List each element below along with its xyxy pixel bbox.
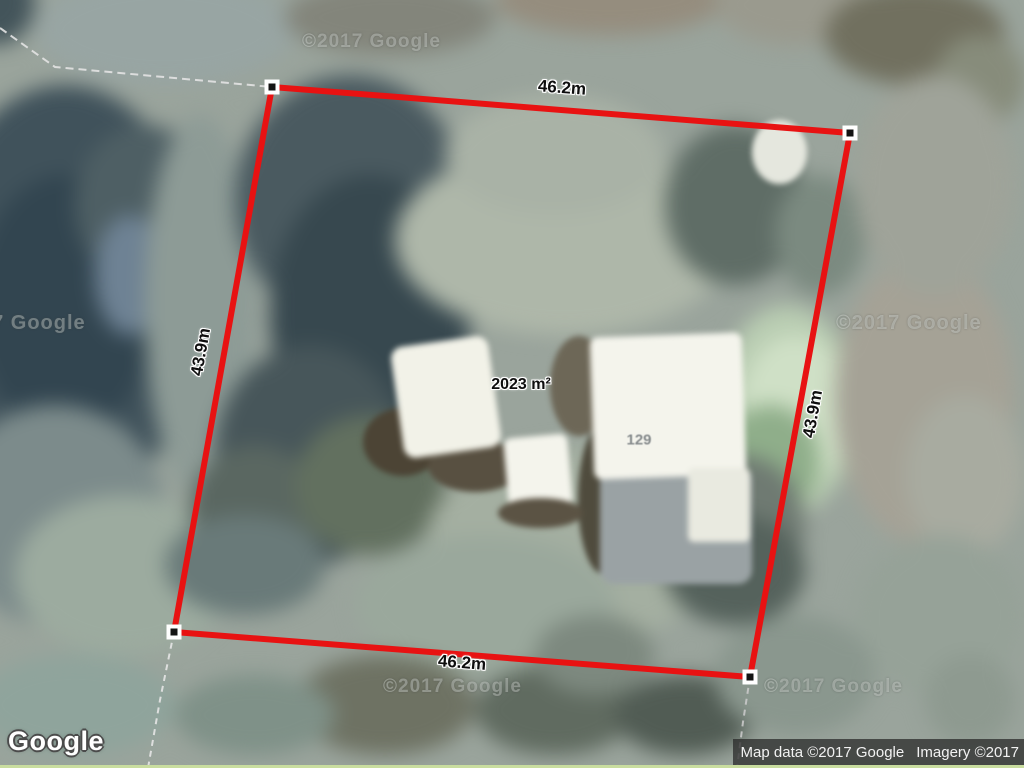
attribution-imagery: Imagery ©2017 xyxy=(916,744,1019,761)
cadastre-line-top-left xyxy=(0,28,272,87)
google-logo[interactable]: Google xyxy=(8,726,104,757)
boundary-corner-marker[interactable] xyxy=(843,126,858,141)
boundary-corner-marker[interactable] xyxy=(167,625,182,640)
dimension-label-top: 46.2m xyxy=(537,76,586,99)
boundary-corner-marker[interactable] xyxy=(265,80,280,95)
satellite-map-canvas[interactable]: ©2017 Google ©2017 Google ©2017 Google ©… xyxy=(0,0,1024,768)
dimension-label-bottom: 46.2m xyxy=(437,651,487,675)
attribution-map-data: Map data ©2017 Google xyxy=(741,744,905,761)
boundary-corner-marker[interactable] xyxy=(743,670,758,685)
map-attribution: Map data ©2017 Google Imagery ©2017 xyxy=(733,739,1024,765)
cadastre-line-bottom-left xyxy=(148,632,174,768)
parcel-area-label: 2023 m² xyxy=(491,376,551,394)
